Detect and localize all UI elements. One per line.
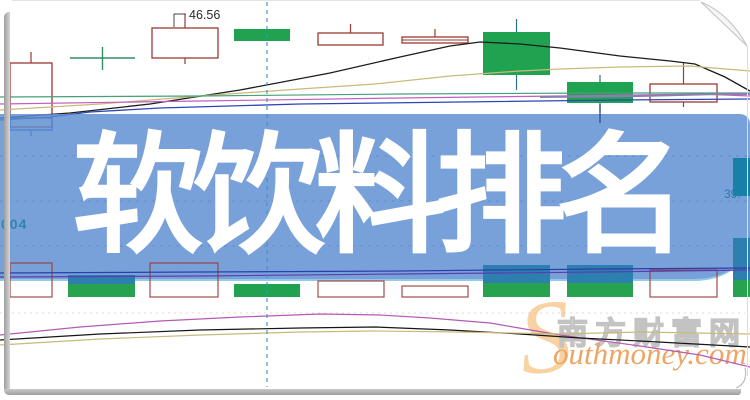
watermark: S 南方财富网 outhmoney.com	[505, 288, 750, 388]
card-edge-left	[4, 12, 10, 392]
card-edge-bottom	[4, 389, 741, 395]
watermark-english: outhmoney.com	[553, 336, 747, 372]
page-curl-top-right-icon	[701, 2, 747, 46]
banner-title: 软饮料排名	[0, 127, 750, 265]
svg-text:46.56: 46.56	[189, 8, 220, 22]
card-edge-top	[12, 0, 700, 1]
card-edge-right	[747, 46, 748, 376]
promo-card: S 南方财富网 outhmoney.com 46.56 004 39. 软饮料排…	[0, 0, 750, 400]
